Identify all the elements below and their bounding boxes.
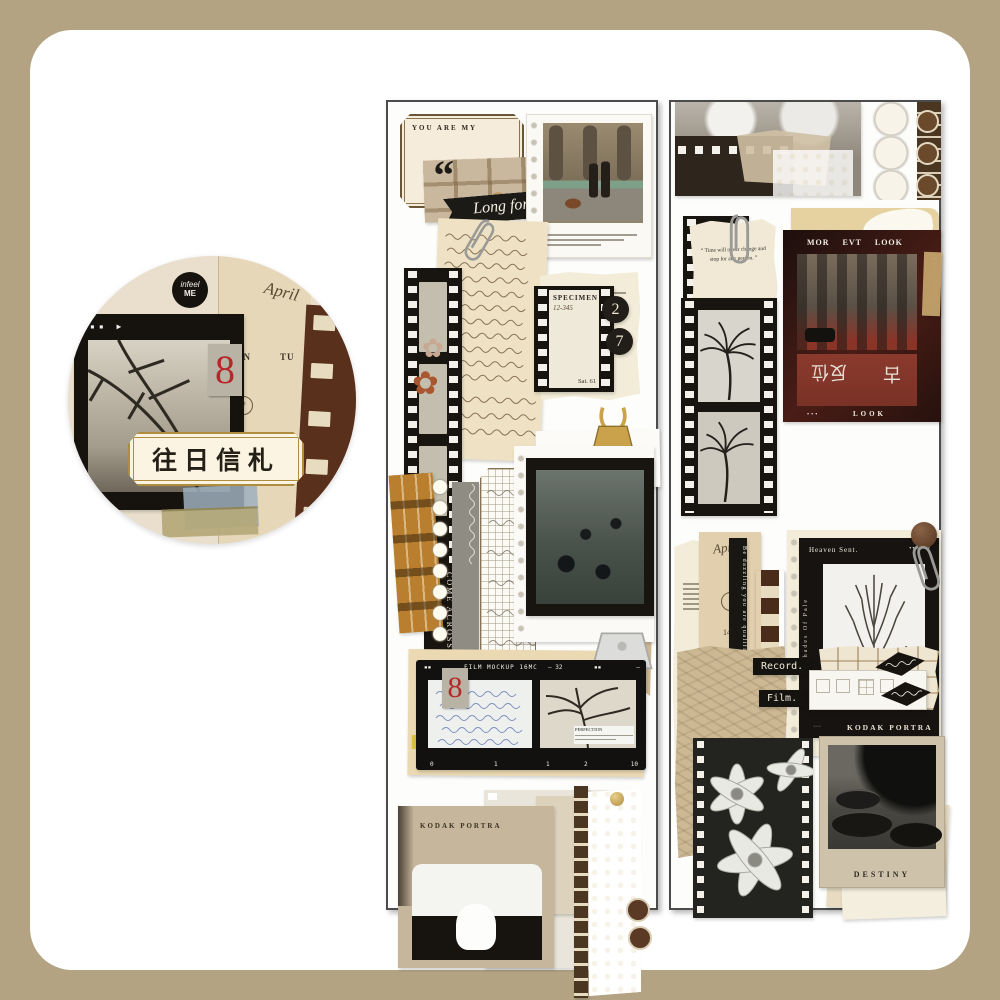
mockup-caption: PERFECTION <box>574 726 634 744</box>
mockup-counter: — 32 <box>548 664 562 671</box>
film-perforation <box>685 301 694 513</box>
mockup-tree-frame: PERFECTION <box>540 680 636 748</box>
mockup-dash: — <box>636 664 640 671</box>
film-chip <box>305 459 328 475</box>
film-mockup-panel: ▪▪ FILM MOCKUP 16MC — 32 ▪▪ — <box>416 660 646 770</box>
scale-mark: 2 <box>584 761 588 768</box>
ticket-text: YOU ARE MY <box>412 124 477 132</box>
street-photo-top <box>797 254 917 350</box>
polaroid-caption: DESTINY <box>820 870 944 879</box>
film-chip <box>310 363 333 379</box>
white-horse <box>456 904 496 950</box>
top-collage-photo <box>675 102 861 196</box>
film-frame-marks: ▪▪ ▶ <box>90 322 125 331</box>
footer-dots: ••• <box>807 412 819 418</box>
palm-frame <box>698 412 760 504</box>
scale-mark: 1 <box>546 761 550 768</box>
flower-icon: ✿ <box>412 364 439 402</box>
lace-chain-tape <box>430 478 450 646</box>
car <box>805 328 835 342</box>
mockup-marks-right: ▪▪ <box>594 664 601 671</box>
heaven-footer: KODAK PORTRA <box>847 723 933 732</box>
number-8-sticker: 8 <box>208 344 242 396</box>
lace-trim-strip <box>867 102 941 200</box>
card-footer: LOOK <box>853 410 886 418</box>
note-quote-open: “ <box>701 248 704 254</box>
couple-photo <box>543 123 643 223</box>
calendar-tue: TU <box>280 352 295 362</box>
cafe-table <box>836 789 880 809</box>
grey-script-tape <box>452 482 479 654</box>
brown-dot <box>916 174 939 197</box>
number-7-badge: 7 <box>606 328 633 355</box>
mockup-number-8: 8 <box>442 668 468 708</box>
heaven-footer-dots: ···· <box>813 724 821 730</box>
photo-caption-lines <box>547 231 637 249</box>
cafe-table <box>890 823 942 847</box>
palm-film-strip <box>681 298 777 516</box>
number-2-badge: 2 <box>602 296 629 323</box>
film-chip <box>308 411 331 427</box>
road-character: 反位 <box>811 360 847 386</box>
look-photo-card: MOR EVT LOOK 反位 古 AF22 CHIC ••• LOOK <box>783 230 941 422</box>
brown-ruler-strip <box>574 786 588 998</box>
frame-square <box>816 679 830 693</box>
gold-brad <box>610 792 624 806</box>
mockup-marks-left: ▪▪ <box>424 664 431 671</box>
lily-film-photo <box>693 738 813 918</box>
cafe-photo <box>828 745 936 849</box>
horse-photo <box>412 864 542 960</box>
specimen-card: SPECIMEN 12-345 Sat. 61 <box>534 286 614 392</box>
scale-mark: 1 <box>494 761 498 768</box>
mockup-title: FILM MOCKUP 16MC <box>464 664 538 671</box>
brown-dot <box>628 926 652 950</box>
film-perforation <box>764 301 773 513</box>
street-photo <box>536 470 644 604</box>
quote-mark: “ <box>433 152 456 201</box>
flower-icon: ✿ <box>422 334 444 364</box>
note-quote-close: ” <box>755 255 758 261</box>
lace-doily-strip <box>588 788 642 996</box>
frame-square <box>836 679 850 693</box>
red-pavement-photo: 反位 古 <box>797 354 917 406</box>
specimen-code: 12-345 <box>553 304 573 312</box>
lace-flowers <box>869 102 913 200</box>
tape-scrap <box>922 252 942 317</box>
destiny-polaroid: DESTINY <box>819 736 945 888</box>
road-character: 古 <box>883 362 901 388</box>
brown-dot <box>916 110 939 133</box>
specimen-corner: Sat. 61 <box>578 378 596 385</box>
infeel-me-logo: infeel ME <box>172 272 208 308</box>
cafe-table <box>832 811 892 837</box>
logo-text-bottom: ME <box>172 289 208 298</box>
brown-dot <box>916 142 939 165</box>
logo-text-top: infeel <box>172 280 208 289</box>
lace-scrap <box>773 150 853 196</box>
palm-frame <box>698 310 760 402</box>
film-label: Film. <box>759 690 805 707</box>
scale-mark: 10 <box>631 761 638 768</box>
tape-strip-left: YOU ARE MY “ Long for <box>386 100 658 910</box>
kodak-portra-card: KODAK PORTRA <box>398 806 554 968</box>
specimen-title: SPECIMEN <box>553 294 598 302</box>
film-chip <box>303 507 326 523</box>
grid-square <box>858 679 874 695</box>
brown-dot <box>626 898 650 922</box>
product-name-label: 往日信札 <box>128 432 304 486</box>
kodak-title: KODAK PORTRA <box>420 822 502 830</box>
tape-strip-right: “ Time will never change and stop for an… <box>669 100 941 910</box>
paperclip-icon <box>723 210 753 268</box>
film-chip <box>313 315 336 331</box>
heaven-title: Heaven Sent. <box>809 546 858 554</box>
film-perforation <box>538 289 547 389</box>
khaki-tape <box>162 506 259 537</box>
record-label: Record. <box>753 658 811 675</box>
sample-badge: April MON TU 7 14 21 ▪▪ ▶ 8 infeel M <box>68 256 356 544</box>
card-header: MOR EVT LOOK <box>807 238 903 247</box>
street-photo-frame <box>526 458 654 616</box>
heaven-side-text: Shades Of Pale <box>803 598 809 663</box>
scale-mark: 0 <box>430 761 434 768</box>
caption-word: PERFECTION <box>575 727 602 732</box>
